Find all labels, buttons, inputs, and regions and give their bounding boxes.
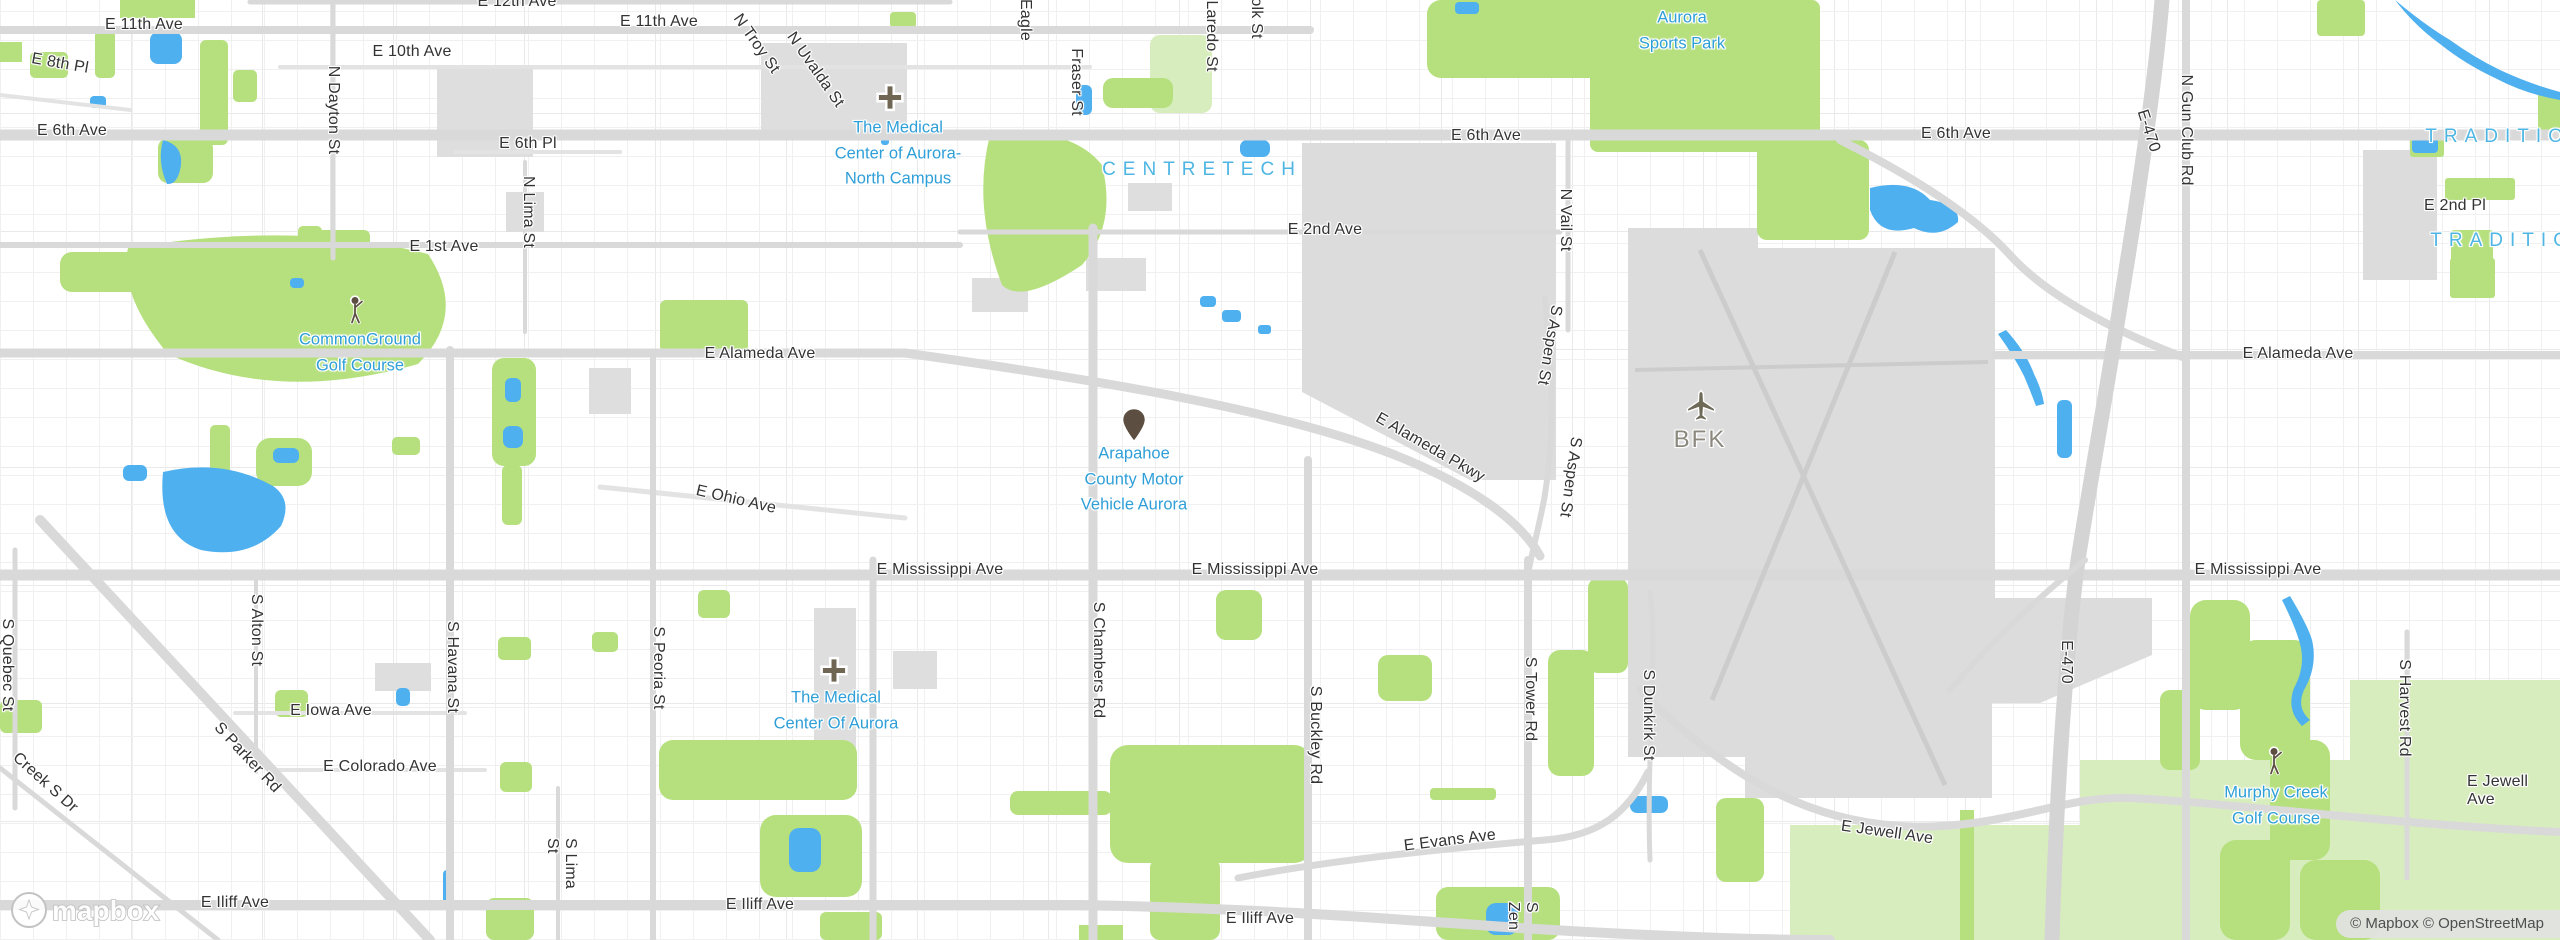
mapbox-logo[interactable]: mapbox xyxy=(8,888,168,932)
map-shapes-layer xyxy=(0,0,2560,940)
map-canvas[interactable]: E 11th AveE 12th AveE 11th AveE 10th Ave… xyxy=(0,0,2560,940)
svg-text:mapbox: mapbox xyxy=(52,895,160,926)
attribution[interactable]: © Mapbox © OpenStreetMap xyxy=(2336,910,2560,938)
attribution-text: © Mapbox © OpenStreetMap xyxy=(2350,915,2544,932)
